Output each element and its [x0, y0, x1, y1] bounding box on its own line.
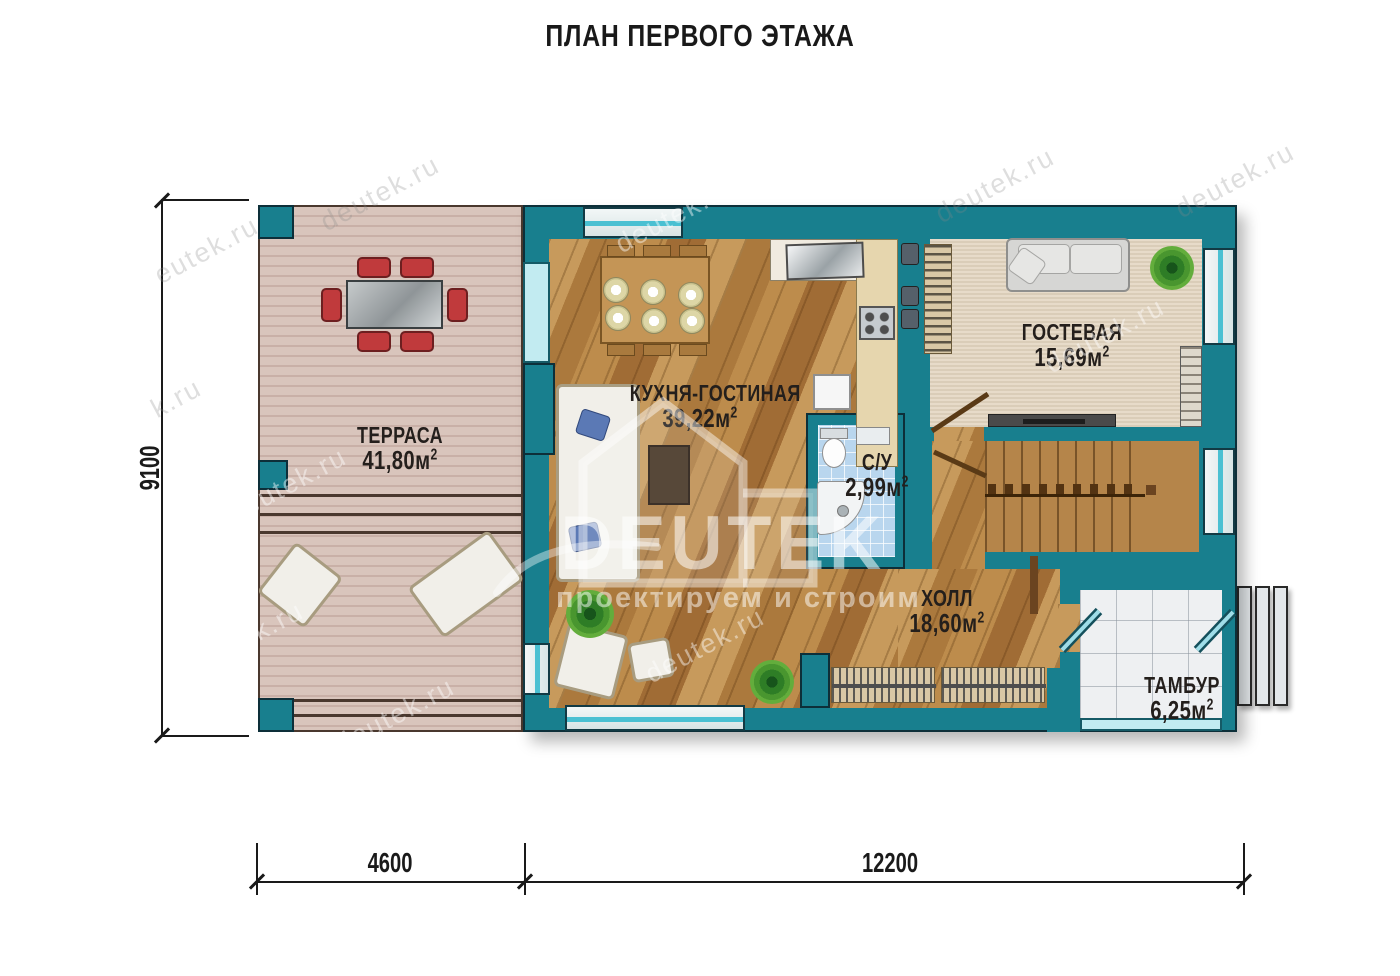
understairs-post [1030, 556, 1038, 614]
guest-right-window [1203, 248, 1235, 345]
guest-shelf [1180, 346, 1202, 427]
entrance-step [1255, 586, 1270, 706]
area-sup: 2 [902, 473, 909, 490]
dining-bench [679, 245, 707, 257]
stove [859, 306, 895, 340]
kitchen-bottom-window [565, 705, 745, 731]
room-name: ТЕРРАСА [338, 423, 463, 447]
room-name: ТАМБУР [1127, 673, 1236, 697]
tv-screen [1023, 419, 1085, 424]
dining-bench [643, 344, 671, 356]
terrace-chair [357, 331, 391, 352]
room-name: КУХНЯ-ГОСТИНАЯ [630, 381, 770, 405]
dim-ext-line [161, 199, 249, 201]
room-name: С/У [830, 450, 924, 474]
house-left-wall-stub [523, 363, 555, 455]
terrace-label: ТЕРРАСА 41,80м2 [338, 423, 463, 474]
terrace-chair [447, 288, 468, 322]
place-setting [641, 308, 667, 334]
fridge [813, 374, 851, 410]
terrace-wall-stub [258, 698, 294, 732]
entrance-step [1273, 586, 1288, 706]
page-title: ПЛАН ПЕРВОГО ЭТАЖА [476, 18, 924, 54]
watermark-text: k.ru [146, 372, 207, 424]
hall-radiator [831, 667, 935, 703]
terrace-glass-door [523, 262, 550, 363]
dim-ext-line [524, 843, 526, 895]
dining-bench [679, 344, 707, 356]
sofa-cushion [1070, 244, 1122, 274]
dim-value-height: 9100 [134, 428, 166, 507]
area-unit: м [415, 445, 430, 475]
dim-value-house-width: 12200 [832, 847, 947, 879]
area-sup: 2 [430, 446, 437, 463]
kitchen-living-label: КУХНЯ-ГОСТИНАЯ 39,22м2 [630, 381, 770, 432]
dim-value-terrace-width: 4600 [347, 847, 433, 879]
room-area: 41,80м2 [338, 447, 463, 474]
radiator-pipe [942, 684, 1046, 688]
place-setting [679, 308, 705, 334]
place-setting [605, 305, 631, 331]
corridor-floor [932, 441, 985, 569]
area-sup: 2 [1207, 696, 1214, 713]
wall-switch [901, 243, 919, 265]
stair-railing [988, 484, 1140, 494]
coffee-table [648, 445, 690, 505]
stair-post [1146, 485, 1156, 495]
area-value: 41,80 [362, 445, 415, 475]
terrace-chair [357, 257, 391, 278]
stairs-right-window [1203, 448, 1235, 535]
area-unit: м [962, 608, 977, 638]
area-value: 2,99 [845, 472, 886, 502]
window-glass-stripe [1218, 250, 1223, 343]
window-glass-stripe [567, 717, 743, 722]
hall-radiator [941, 667, 1045, 703]
entrance-step [1237, 586, 1252, 706]
stair-landing [1145, 441, 1199, 552]
window-glass-stripe [1218, 450, 1223, 533]
terrace-step-line [260, 513, 521, 516]
area-value: 6,25 [1150, 695, 1191, 725]
vestibule-label: ТАМБУР 6,25м2 [1127, 673, 1236, 724]
kitchen-left-window [523, 643, 550, 695]
kitchen-sink [785, 242, 864, 281]
room-area: 2,99м2 [830, 474, 924, 501]
terrace-dining-table [346, 280, 443, 329]
place-setting [603, 277, 629, 303]
radiator-pipe [832, 684, 936, 688]
terrace-chair [321, 288, 342, 322]
place-setting [640, 279, 666, 305]
bathroom-sink [856, 427, 890, 445]
dining-bench [607, 344, 635, 356]
bathroom-label: С/У 2,99м2 [830, 450, 924, 501]
room-area: 6,25м2 [1127, 697, 1236, 724]
dim-ext-line [1243, 843, 1245, 895]
entrance-steps [1237, 586, 1291, 706]
wall-switch [901, 309, 919, 329]
watermark-logo: DEUTEK [561, 500, 886, 587]
watermark-text: eutek.ru [149, 210, 264, 291]
room-area: 39,22м2 [630, 405, 770, 432]
area-unit: м [715, 403, 730, 433]
area-unit: м [1191, 695, 1206, 725]
watermark-tagline: проектируем и строим [556, 582, 921, 615]
area-sup: 2 [730, 404, 737, 421]
terrace-chair [400, 257, 434, 278]
wall-switch [901, 286, 919, 306]
dim-line-bottom [257, 881, 1245, 883]
place-setting [678, 282, 704, 308]
guest-radiator [924, 244, 952, 354]
plant [750, 660, 794, 704]
guest-door-threshold [934, 427, 984, 441]
plant [1150, 246, 1194, 290]
vestibule-doorway-floor [1058, 604, 1080, 652]
area-value: 39,22 [662, 403, 715, 433]
area-sup: 2 [977, 609, 984, 626]
hall-wall-pillar [800, 653, 830, 708]
area-unit: м [886, 472, 901, 502]
terrace-chair [400, 331, 434, 352]
tv-cabinet [988, 414, 1116, 427]
dim-ext-line [161, 735, 249, 737]
floor-plan-canvas: ПЛАН ПЕРВОГО ЭТАЖА [0, 0, 1400, 976]
terrace-wall-stub [258, 205, 294, 239]
vestibule-wall-pillar [1047, 668, 1080, 732]
dim-ext-line [256, 843, 258, 895]
window-glass-stripe [535, 645, 540, 693]
stair-flight-divider [985, 494, 1145, 497]
